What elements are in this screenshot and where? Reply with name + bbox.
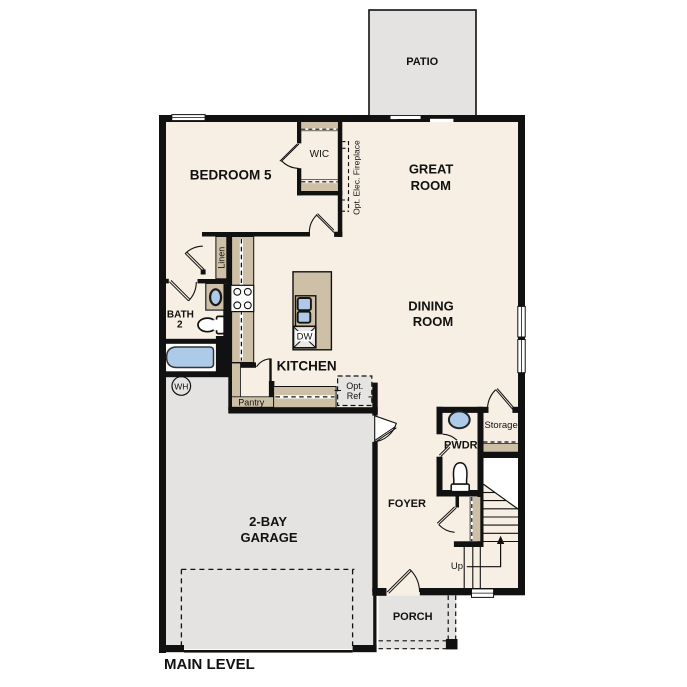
svg-text:ROOM: ROOM bbox=[413, 314, 453, 329]
svg-text:Linen: Linen bbox=[216, 247, 226, 269]
svg-text:DW: DW bbox=[297, 332, 313, 343]
svg-text:KITCHEN: KITCHEN bbox=[277, 359, 337, 374]
svg-text:Opt.: Opt. bbox=[346, 381, 363, 391]
svg-text:2: 2 bbox=[177, 319, 183, 330]
svg-text:Opt. Elec. Fireplace: Opt. Elec. Fireplace bbox=[352, 140, 362, 215]
svg-text:Storage: Storage bbox=[484, 420, 517, 431]
svg-text:PORCH: PORCH bbox=[393, 611, 433, 623]
svg-text:Ref: Ref bbox=[347, 391, 362, 401]
svg-text:WH: WH bbox=[174, 381, 188, 391]
svg-text:GARAGE: GARAGE bbox=[240, 530, 297, 545]
svg-text:WIC: WIC bbox=[310, 149, 329, 160]
svg-text:FOYER: FOYER bbox=[388, 498, 426, 510]
svg-text:ROOM: ROOM bbox=[411, 178, 451, 193]
svg-text:GREAT: GREAT bbox=[409, 162, 454, 177]
svg-text:2-BAY: 2-BAY bbox=[249, 514, 287, 529]
svg-text:PWDR: PWDR bbox=[444, 440, 478, 452]
svg-text:PATIO: PATIO bbox=[406, 56, 438, 68]
svg-text:Up: Up bbox=[451, 561, 463, 572]
svg-text:DINING: DINING bbox=[408, 298, 454, 313]
svg-text:Pantry: Pantry bbox=[238, 397, 265, 407]
svg-text:MAIN LEVEL: MAIN LEVEL bbox=[164, 656, 255, 673]
svg-text:BEDROOM 5: BEDROOM 5 bbox=[190, 168, 272, 183]
